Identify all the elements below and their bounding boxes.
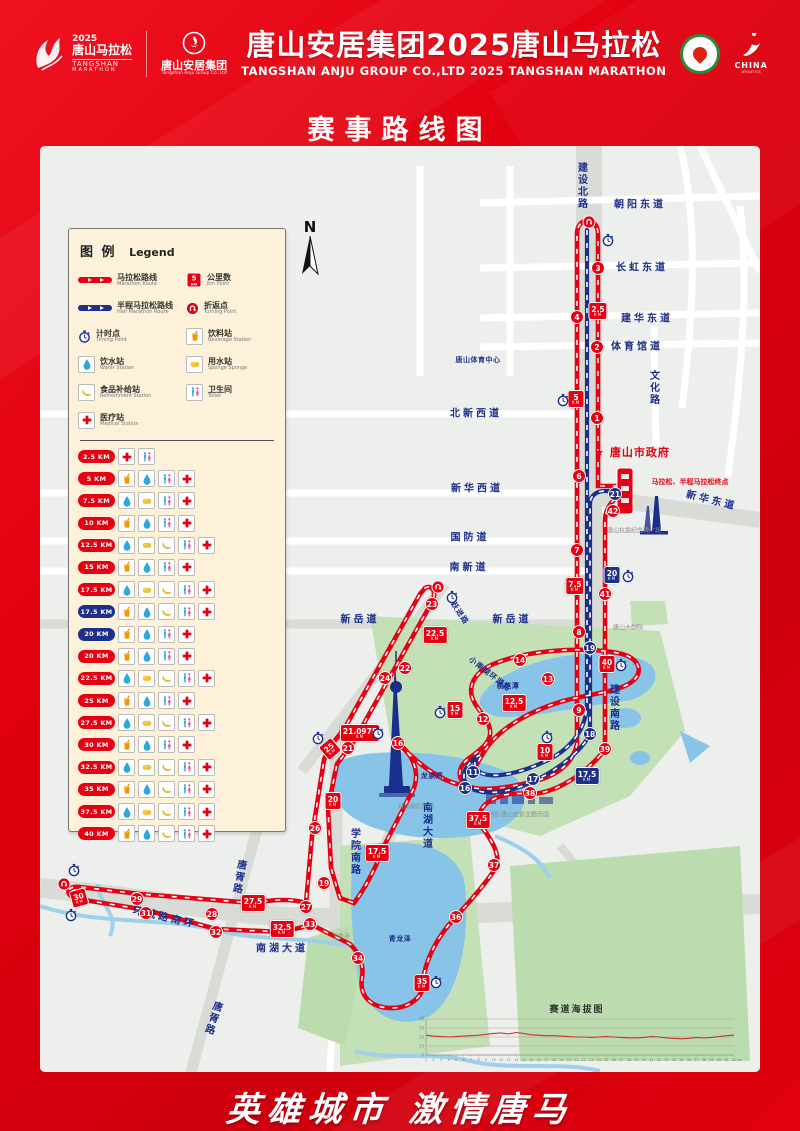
route-red-icon xyxy=(78,276,112,284)
map-label: 朝阳东道 xyxy=(614,196,666,211)
km-point-marker: 32.5KM xyxy=(270,920,295,938)
event-logo: 2025 唐山马拉松 TANGSHAN MARATHON xyxy=(32,32,132,76)
km-circle-marker: 16 xyxy=(391,736,405,750)
map-label: 国防道 xyxy=(451,529,490,544)
sponsor-name-en: Tangshan Anju Group Co.,Ltd xyxy=(162,72,227,77)
km-circle-marker: 28 xyxy=(205,907,219,921)
station-row: 27.5 KM xyxy=(78,714,276,731)
legend-item-sponge: 用水站Sponge Sponge xyxy=(186,352,278,376)
main-title-cn: 唐山安居集团2025唐山马拉松 xyxy=(246,30,661,62)
svg-text:39: 39 xyxy=(709,1058,713,1062)
timing-icon xyxy=(78,330,91,343)
water-icon xyxy=(138,626,155,643)
svg-text:28: 28 xyxy=(627,1058,631,1062)
svg-text:8: 8 xyxy=(477,1058,479,1062)
km-circle-marker: 42 xyxy=(606,504,620,518)
svg-text:26: 26 xyxy=(612,1058,616,1062)
km-point-marker: 2.5KM xyxy=(588,302,607,320)
medical-icon xyxy=(178,648,195,665)
compass-arrow-icon xyxy=(301,236,319,276)
svg-text:18: 18 xyxy=(552,1058,556,1062)
svg-text:40: 40 xyxy=(717,1058,721,1062)
km-circle-marker: 4 xyxy=(570,310,584,324)
svg-text:5: 5 xyxy=(455,1058,457,1062)
map-label: 丹凤朝阳广场 xyxy=(398,802,434,811)
legend-divider xyxy=(80,440,274,441)
beverage-icon xyxy=(118,692,135,709)
legend-item-route-blue: 半程马拉松路线Half Marathon Route xyxy=(78,296,186,320)
toilet-icon xyxy=(138,448,155,465)
station-row: 30 KM xyxy=(78,736,276,753)
event-logo-text: 2025 唐山马拉松 TANGSHAN MARATHON xyxy=(72,35,132,74)
legend-item-medical: 医疗站Medical Station xyxy=(78,408,186,432)
km-circle-marker: 39 xyxy=(598,742,612,756)
badge-emblem-icon xyxy=(691,44,711,64)
medical-icon xyxy=(178,626,195,643)
svg-text:31: 31 xyxy=(649,1058,653,1062)
toilet-icon xyxy=(178,603,195,620)
legend-title: 图 例 Legend xyxy=(80,241,276,260)
station-row: 10 KM xyxy=(78,515,276,532)
food-icon xyxy=(158,603,175,620)
km-circle-marker: 27 xyxy=(299,900,313,914)
map-label: 唐山体育中心 xyxy=(456,355,501,365)
beverage-icon xyxy=(186,328,203,345)
map-label: 唐山大剧院 xyxy=(613,623,643,632)
svg-text:10: 10 xyxy=(491,1058,495,1062)
medical-icon xyxy=(118,448,135,465)
svg-text:19: 19 xyxy=(559,1058,563,1062)
map-label: 唐山抗震纪念碑广场 xyxy=(607,526,661,535)
km-point-marker: 20KM xyxy=(325,792,342,810)
km-point-marker: 22.5KM xyxy=(423,626,448,644)
km-unit: KM xyxy=(328,748,337,756)
medical-icon xyxy=(78,412,95,429)
km-pill: 10 KM xyxy=(78,517,115,530)
svg-text:km: km xyxy=(737,1058,742,1062)
station-row: 12.5 KM xyxy=(78,537,276,554)
legend-panel: 图 例 Legend 马拉松路线Marathon Route5KM公里数Km P… xyxy=(68,228,286,832)
station-row: 20 KM xyxy=(78,626,276,643)
timing-point-icon xyxy=(65,907,78,926)
km-pill: 20 KM xyxy=(78,628,115,641)
station-row: 15 KM xyxy=(78,559,276,576)
route-blue-icon xyxy=(78,304,112,312)
water-icon xyxy=(118,492,135,509)
elevation-chart: 赛道海拔图 0102030401234567891011121314151617… xyxy=(412,1002,742,1068)
km-pill: 35 KM xyxy=(78,783,115,796)
km-unit: KM xyxy=(76,899,85,905)
svg-text:7: 7 xyxy=(470,1058,472,1062)
food-icon xyxy=(158,670,175,687)
china-sub-label: ATHLETICS xyxy=(742,71,761,75)
km-circle-marker: 29 xyxy=(130,892,144,906)
food-icon xyxy=(158,781,175,798)
km-circle-marker: 36 xyxy=(449,910,463,924)
medical-icon xyxy=(198,781,215,798)
svg-text:29: 29 xyxy=(634,1058,638,1062)
sponsor-logo: 唐山安居集团 Tangshan Anju Group Co.,Ltd xyxy=(161,31,227,78)
km-pill: 2.5 KM xyxy=(78,450,115,463)
km-circle-marker: 31 xyxy=(139,906,153,920)
map-label: 学院南路 xyxy=(347,828,362,876)
svg-text:1: 1 xyxy=(425,1058,427,1062)
map-label: 桃花潭 xyxy=(497,681,520,691)
svg-text:17: 17 xyxy=(544,1058,548,1062)
food-icon xyxy=(78,384,95,401)
food-icon xyxy=(158,714,175,731)
timing-point-icon xyxy=(372,725,385,744)
km-circle-marker: 1 xyxy=(590,411,604,425)
km-pill: 7.5 KM xyxy=(78,494,115,507)
svg-text:38: 38 xyxy=(702,1058,706,1062)
water-icon xyxy=(138,825,155,842)
sponge-icon xyxy=(138,537,155,554)
map-label: 体育馆道 xyxy=(611,338,663,353)
anju-flame-icon xyxy=(182,31,206,59)
svg-text:12: 12 xyxy=(506,1058,510,1062)
map-label: 龙泉寺 xyxy=(332,932,350,941)
map-label: 青龙泽 xyxy=(389,934,412,944)
toilet-icon xyxy=(178,581,195,598)
toilet-icon xyxy=(158,559,175,576)
km-unit: KM xyxy=(474,822,482,826)
medical-icon xyxy=(178,470,195,487)
water-box xyxy=(78,356,95,373)
km-circle-marker: 9 xyxy=(572,703,586,717)
station-row: 5 KM xyxy=(78,470,276,487)
beverage-icon xyxy=(118,626,135,643)
legend-item-empty xyxy=(186,408,278,432)
km-pill: 17.5 KM xyxy=(78,583,115,596)
medical-icon xyxy=(198,714,215,731)
svg-text:36: 36 xyxy=(687,1058,691,1062)
km-circle-marker: 37 xyxy=(487,858,501,872)
elevation-chart-plot: 0102030401234567891011121314151617181920… xyxy=(412,1015,742,1071)
water-icon xyxy=(118,803,135,820)
timing-point-icon xyxy=(602,232,615,251)
phoenix-icon xyxy=(32,32,66,76)
water-icon xyxy=(138,515,155,532)
svg-text:37: 37 xyxy=(694,1058,698,1062)
svg-text:30: 30 xyxy=(642,1058,646,1062)
legend-item-en: Water Station xyxy=(100,366,134,372)
km-circle-marker: 2 xyxy=(590,340,604,354)
header-divider xyxy=(146,31,147,77)
main-title-en: TANGSHAN ANJU GROUP CO.,LTD 2025 TANGSHA… xyxy=(241,65,666,78)
toilet-icon xyxy=(178,781,195,798)
legend-title-en: Legend xyxy=(129,246,175,259)
map-label: 中国·唐山皮影主题乐园 xyxy=(487,810,549,819)
km-circle-marker: 34 xyxy=(351,951,365,965)
toilet-icon xyxy=(178,825,195,842)
svg-text:20: 20 xyxy=(419,1035,425,1040)
km-pill: 17.5 KM xyxy=(78,605,115,618)
legend-item-text: 用水站Sponge Sponge xyxy=(208,357,247,372)
km-circle-marker: 16 xyxy=(458,781,472,795)
water-icon xyxy=(118,581,135,598)
svg-text:0: 0 xyxy=(421,1053,424,1058)
svg-text:23: 23 xyxy=(589,1058,593,1062)
km-unit: KM xyxy=(278,931,286,935)
km-pill: 32.5 KM xyxy=(78,761,115,774)
toilet-icon xyxy=(158,626,175,643)
km-circle-marker: 17 xyxy=(526,772,540,786)
timing-point-icon xyxy=(434,704,447,723)
athletics-association-badge-icon xyxy=(680,34,720,74)
toilet-icon xyxy=(158,492,175,509)
legend-item-km: 5KM公里数Km Point xyxy=(186,268,278,292)
station-row: 20 KM xyxy=(78,648,276,665)
km-circle-marker: 12 xyxy=(476,712,490,726)
timing-point-icon xyxy=(622,568,635,587)
beverage-icon xyxy=(118,603,135,620)
legend-item-en: Toilet xyxy=(208,394,232,400)
map-label: 建设南路 xyxy=(606,684,621,732)
legend-item-water: 饮水站Water Station xyxy=(78,352,186,376)
toilet-icon xyxy=(178,670,195,687)
beverage-icon xyxy=(118,470,135,487)
km-point-marker: 17.5KM xyxy=(365,844,390,862)
water-icon xyxy=(118,759,135,776)
medical-icon xyxy=(198,581,215,598)
legend-items: 马拉松路线Marathon Route5KM公里数Km Point半程马拉松路线… xyxy=(78,268,276,432)
legend-item-turn: 折返点Turning Point xyxy=(186,296,278,320)
timing-point-icon xyxy=(430,974,443,993)
station-row: 25 KM xyxy=(78,692,276,709)
title-block: 唐山安居集团2025唐山马拉松 TANGSHAN ANJU GROUP CO.,… xyxy=(241,30,666,78)
beverage-icon xyxy=(118,781,135,798)
km-point-marker: 40KM xyxy=(599,655,616,673)
km-pill: 22.5 KM xyxy=(78,672,115,685)
map-label: 龙泉湾 xyxy=(421,771,444,781)
svg-text:6: 6 xyxy=(462,1058,464,1062)
km-circle-marker: 7 xyxy=(570,543,584,557)
sponge-icon xyxy=(138,670,155,687)
legend-item-text: 马拉松路线Marathon Route xyxy=(117,273,157,288)
legend-item-toilet: 卫生间Toilet xyxy=(186,380,278,404)
km-point-marker: 20KM xyxy=(604,566,621,584)
km-circle-marker: 22 xyxy=(398,661,412,675)
svg-text:33: 33 xyxy=(664,1058,668,1062)
svg-text:3: 3 xyxy=(440,1058,442,1062)
sponge-icon xyxy=(138,803,155,820)
legend-item-timing: 计时点Timing Point xyxy=(78,324,186,348)
toilet-box xyxy=(186,384,203,401)
km-unit: KM xyxy=(451,712,459,716)
legend-item-text: 计时点Timing Point xyxy=(96,329,127,344)
km-circle-marker: 6 xyxy=(572,469,586,483)
svg-text:15: 15 xyxy=(529,1058,533,1062)
slogan: 英雄城市 激情唐马 xyxy=(0,1082,800,1131)
station-row: 37.5 KM xyxy=(78,803,276,820)
toilet-icon xyxy=(158,648,175,665)
svg-text:30: 30 xyxy=(419,1026,425,1031)
km-circle-marker: 33 xyxy=(303,917,317,931)
legend-item-en: Medical Station xyxy=(100,422,139,428)
km-circle-marker: 24 xyxy=(378,671,392,685)
km-circle-marker: 26 xyxy=(308,821,322,835)
medical-icon xyxy=(198,537,215,554)
km-unit: KM xyxy=(373,855,381,859)
km-point-marker: 15KM xyxy=(447,701,464,719)
food-box xyxy=(78,384,95,401)
station-row: 40 KM xyxy=(78,825,276,842)
km-circle-marker: 19 xyxy=(317,876,331,890)
km-unit: KM xyxy=(572,401,580,405)
legend-item-food: 食品补给站Refreshment Station xyxy=(78,380,186,404)
water-icon xyxy=(138,736,155,753)
km-circle-marker: 18 xyxy=(583,727,597,741)
svg-text:m: m xyxy=(420,1016,424,1020)
km-unit: KM xyxy=(431,637,439,641)
toilet-icon xyxy=(158,515,175,532)
km-unit: KM xyxy=(608,577,616,581)
km-circle-marker: 41 xyxy=(598,587,612,601)
km-circle-marker: 21 xyxy=(341,741,355,755)
km-point-marker: 12.5KM xyxy=(502,694,527,712)
beverage-icon xyxy=(118,736,135,753)
svg-text:2: 2 xyxy=(432,1058,434,1062)
km-point-marker: 37.5KM xyxy=(466,811,491,829)
legend-item-text: 医疗站Medical Station xyxy=(100,413,139,428)
km-circle-marker: 11 xyxy=(466,765,480,779)
km-pill: 25 KM xyxy=(78,694,115,707)
food-icon xyxy=(158,581,175,598)
station-row: 17.5 KM xyxy=(78,581,276,598)
km-unit: KM xyxy=(356,735,364,739)
legend-item-en: Beverage Station xyxy=(208,338,251,344)
legend-item-en: Marathon Route xyxy=(117,282,157,288)
beverage-icon xyxy=(118,515,135,532)
turn-icon xyxy=(186,302,199,315)
km-circle-marker: 32 xyxy=(209,925,223,939)
food-icon xyxy=(158,759,175,776)
km-icon: 5KM xyxy=(186,272,202,288)
km-circle-marker: 13 xyxy=(541,672,555,686)
svg-text:KM: KM xyxy=(191,283,198,287)
km-point-marker: 27.5KM xyxy=(241,894,266,912)
sponge-icon xyxy=(138,759,155,776)
svg-text:4: 4 xyxy=(447,1058,449,1062)
svg-text:32: 32 xyxy=(657,1058,661,1062)
legend-item-text: 食品补给站Refreshment Station xyxy=(100,385,151,400)
station-row: 22.5 KM xyxy=(78,670,276,687)
toilet-icon xyxy=(178,714,195,731)
turning-point-icon xyxy=(432,579,445,598)
sponge-box xyxy=(186,356,203,373)
station-row: 35 KM xyxy=(78,781,276,798)
km-unit: KM xyxy=(249,905,257,909)
beverage-box xyxy=(186,328,203,345)
medical-icon xyxy=(178,492,195,509)
timing-point-icon xyxy=(615,657,628,676)
elevation-chart-title: 赛道海拔图 xyxy=(412,1002,742,1015)
water-icon xyxy=(138,648,155,665)
legend-item-text: 半程马拉松路线Half Marathon Route xyxy=(117,301,173,316)
medical-icon xyxy=(178,692,195,709)
station-row: 2.5 KM xyxy=(78,448,276,465)
medical-box xyxy=(78,412,95,429)
map-label: ★ 唐山市政府 xyxy=(594,444,670,460)
svg-text:42: 42 xyxy=(732,1058,736,1062)
marathon-route-poster: 2025 唐山马拉松 TANGSHAN MARATHON 唐山安居集团 Tang… xyxy=(0,0,800,1131)
toilet-icon xyxy=(158,470,175,487)
toilet-icon xyxy=(158,692,175,709)
svg-text:16: 16 xyxy=(537,1058,541,1062)
km-pill: 15 KM xyxy=(78,561,115,574)
toilet-icon xyxy=(186,384,203,401)
svg-text:22: 22 xyxy=(582,1058,586,1062)
event-logo-cn: 唐山马拉松 xyxy=(72,44,132,57)
legend-item-text: 公里数Km Point xyxy=(207,273,231,288)
km-unit: KM xyxy=(329,803,337,807)
timing-point-icon xyxy=(312,730,325,749)
water-icon xyxy=(138,603,155,620)
beverage-icon xyxy=(118,559,135,576)
sponge-icon xyxy=(138,714,155,731)
legend-item-en: Half Marathon Route xyxy=(117,310,173,316)
km-point-marker: 7.5KM xyxy=(565,577,584,595)
km-pill: 30 KM xyxy=(78,738,115,751)
runner-icon xyxy=(738,33,764,62)
toilet-icon xyxy=(178,803,195,820)
legend-item-text: 饮水站Water Station xyxy=(100,357,134,372)
km-pill: 5 KM xyxy=(78,472,115,485)
water-icon xyxy=(78,356,95,373)
svg-text:25: 25 xyxy=(604,1058,608,1062)
km-unit: KM xyxy=(603,666,611,670)
water-icon xyxy=(118,537,135,554)
map-label: 建华东道 xyxy=(621,310,673,325)
svg-text:41: 41 xyxy=(724,1058,728,1062)
km-circle-marker: 8 xyxy=(572,625,586,639)
km-point-marker: 35KM xyxy=(414,974,431,992)
legend-item-beverage: 饮料站Beverage Station xyxy=(186,324,278,348)
medical-icon xyxy=(198,603,215,620)
km-unit: KM xyxy=(583,778,591,782)
timing-point-icon xyxy=(541,729,554,748)
toilet-icon xyxy=(158,736,175,753)
legend-item-text: 饮料站Beverage Station xyxy=(208,329,251,344)
map-label: 南湖大道 xyxy=(256,940,308,955)
svg-text:14: 14 xyxy=(521,1058,525,1062)
medical-icon xyxy=(198,825,215,842)
china-label: CHINA xyxy=(734,62,767,70)
legend-title-cn: 图 例 xyxy=(80,245,117,260)
svg-text:24: 24 xyxy=(597,1058,601,1062)
station-row: 17.5 KM xyxy=(78,603,276,620)
medical-icon xyxy=(178,559,195,576)
beverage-icon xyxy=(118,825,135,842)
food-icon xyxy=(158,537,175,554)
km-unit: KM xyxy=(541,754,549,758)
svg-text:10: 10 xyxy=(419,1044,425,1049)
svg-text:20: 20 xyxy=(567,1058,571,1062)
water-icon xyxy=(118,714,135,731)
event-logo-en2: MARATHON xyxy=(72,68,132,73)
sponge-icon xyxy=(138,581,155,598)
water-icon xyxy=(138,559,155,576)
legend-item-en: Km Point xyxy=(207,282,231,288)
km-circle-marker: 14 xyxy=(513,653,527,667)
turning-point-icon xyxy=(583,214,596,233)
km-pill: 20 KM xyxy=(78,650,115,663)
water-icon xyxy=(138,692,155,709)
north-label: N xyxy=(295,218,325,236)
header: 2025 唐山马拉松 TANGSHAN MARATHON 唐山安居集团 Tang… xyxy=(0,14,800,94)
toilet-icon xyxy=(178,759,195,776)
